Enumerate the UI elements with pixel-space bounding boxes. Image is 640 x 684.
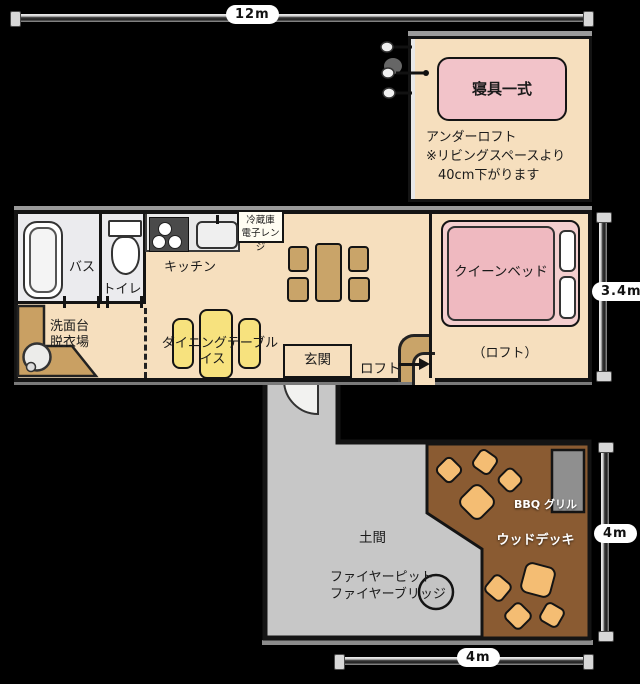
dimension-label-12m: 12m (226, 5, 279, 24)
stove-icon (149, 217, 189, 252)
seat-cushion (287, 277, 309, 302)
underloft-note-line2: ※リビングスペースより (426, 147, 565, 166)
bbq-grill-label: BBQ グリル (514, 496, 577, 512)
wood-deck-label: ウッドデッキ (488, 529, 583, 548)
firepit-label-line2: ファイヤーブリッジ (330, 583, 446, 602)
burner-icon (168, 235, 182, 249)
door-tick (63, 296, 66, 308)
loft-arrow-icon (419, 358, 430, 370)
bathtub (23, 221, 63, 299)
lower-wing (255, 372, 600, 657)
dimension-endcap (596, 212, 612, 223)
toilet-bowl (111, 236, 140, 275)
kitchen-sink (196, 221, 238, 249)
dimension-endcap (596, 371, 612, 382)
dressing-room-label: 脱衣場 (50, 331, 89, 350)
pin-icon (382, 68, 394, 78)
loft-label: ロフト (360, 357, 401, 377)
queen-bed-label: クイーンベッド (447, 260, 555, 280)
microwave-label: 電子レンジ (239, 227, 282, 254)
faucet-icon (216, 215, 219, 224)
underloft-note-line3: 40cm下がります (426, 166, 565, 185)
dimension-label-wing-4m: 4m (594, 524, 637, 543)
toilet-tank (108, 220, 142, 237)
dimension-endcap (583, 654, 594, 670)
dimension-endcap (10, 11, 21, 27)
partition-dashed-line (144, 308, 147, 378)
door-tick (97, 296, 100, 308)
doma-label: 土間 (345, 526, 400, 546)
door-tick (140, 296, 143, 308)
dimension-endcap (598, 442, 614, 453)
loft-arrow-line (399, 363, 421, 366)
ladder-pin-icons (375, 35, 435, 105)
pillow (559, 276, 576, 319)
bedding-set-label: 寝具一式 (472, 80, 532, 98)
burner-icon (152, 235, 166, 249)
pillow (559, 230, 576, 272)
floor-plan-canvas: 12m 寝具一式 アンダーロフト ※リビングスペースより 40cm下がります (0, 0, 640, 684)
kitchen-label: キッチン (150, 256, 230, 275)
dimension-endcap (334, 654, 345, 670)
fridge-label: 冷蔵庫 (239, 214, 282, 227)
seat-cushion (348, 277, 370, 302)
chair-label: イス (155, 348, 270, 367)
dimension-label-bottom-4m: 4m (457, 648, 500, 667)
dimension-label-3-4m: 3.4m (592, 282, 640, 301)
underloft-note-line1: アンダーロフト (426, 128, 565, 147)
loft-paren-label: （ロフト） (460, 342, 550, 361)
dimension-line-top (12, 14, 592, 22)
bath-label: バス (60, 256, 104, 275)
appliance-box: 冷蔵庫 電子レンジ (237, 210, 284, 243)
toilet-label: トイレ (98, 278, 146, 297)
bathtub-inner (29, 227, 57, 293)
bedding-set-box: 寝具一式 (437, 57, 567, 121)
entrance-label: 玄関 (304, 352, 331, 368)
living-table (315, 243, 342, 302)
door-tick (106, 296, 109, 308)
entrance-box: 玄関 (283, 344, 352, 378)
seat-cushion (288, 246, 309, 272)
dimension-endcap (598, 631, 614, 642)
bedroom-wall (429, 214, 432, 378)
underloft-note: アンダーロフト ※リビングスペースより 40cm下がります (426, 128, 565, 185)
pin-icon (383, 88, 395, 98)
seat-cushion (348, 246, 369, 272)
pin-icon (381, 42, 393, 52)
dimension-endcap (583, 11, 594, 27)
burner-icon (158, 222, 172, 236)
